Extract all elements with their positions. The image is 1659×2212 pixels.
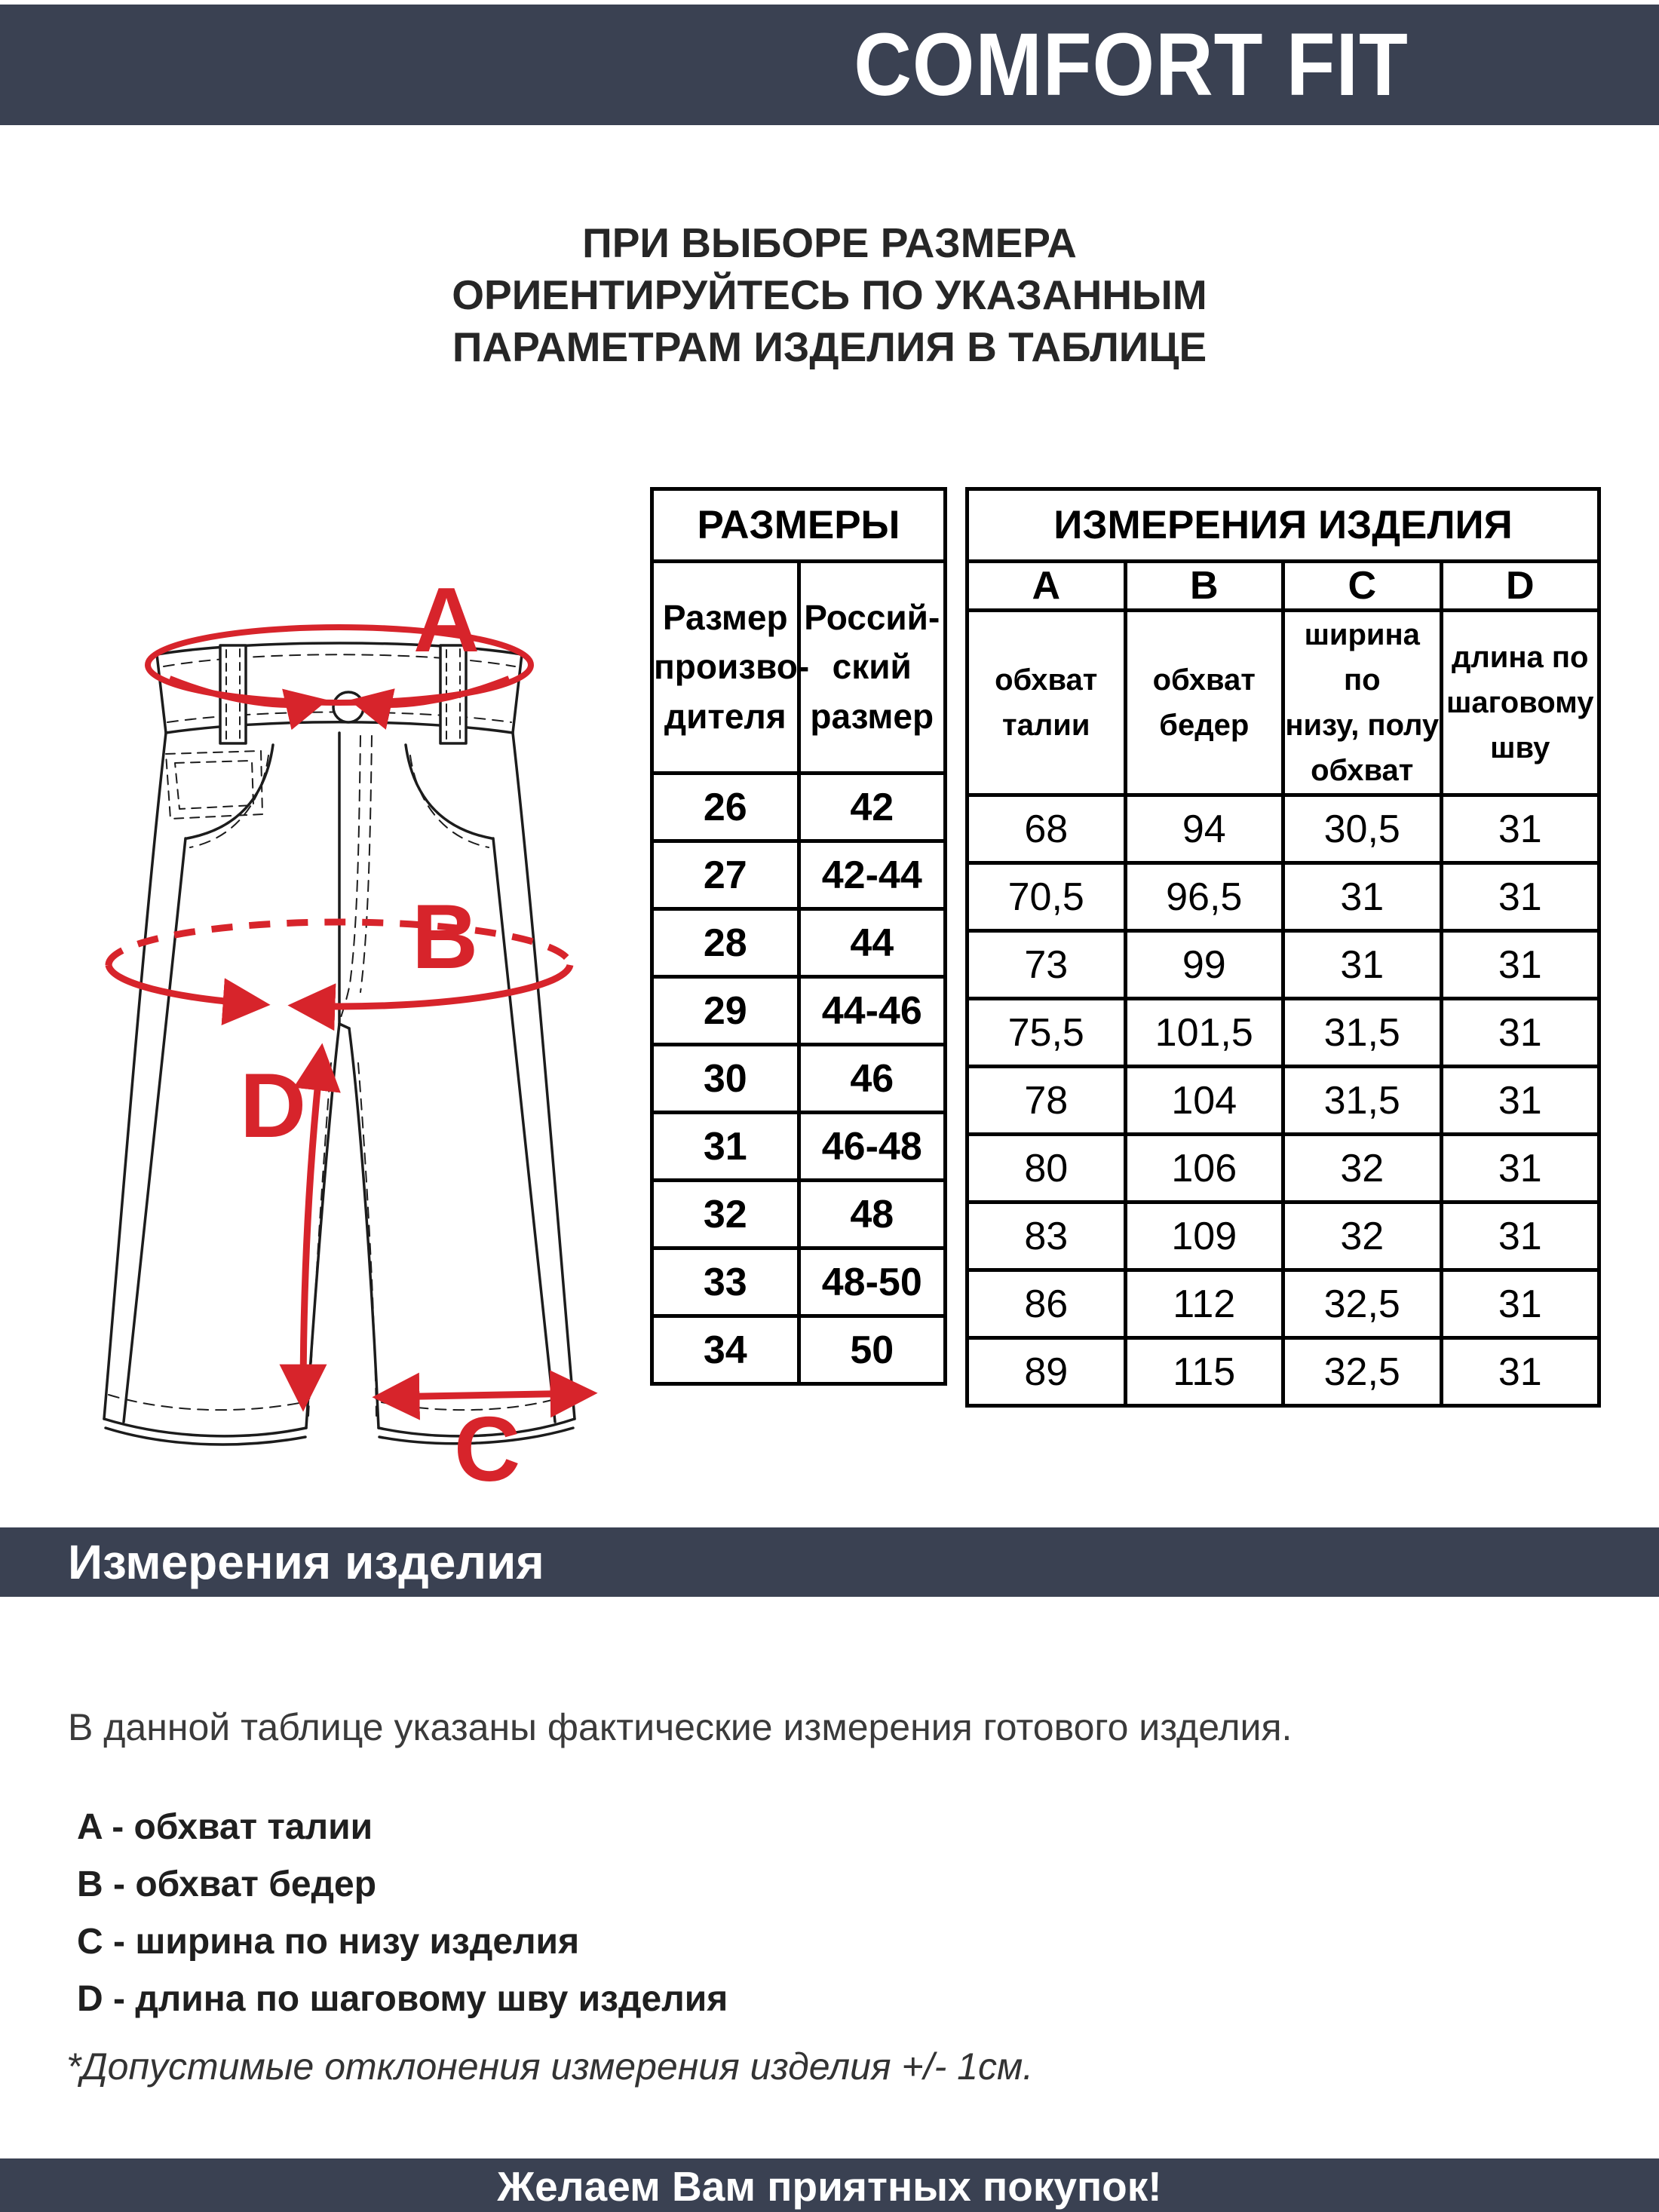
hem-width-cell: 32: [1283, 1203, 1442, 1270]
table-row: 8611232,531: [967, 1270, 1599, 1338]
col-letter-d: D: [1441, 562, 1599, 611]
hip-cell: 96,5: [1125, 863, 1283, 931]
table-row: 73993131: [967, 931, 1599, 999]
maker-size-cell: 28: [652, 909, 799, 977]
section-header-bar: Измерения изделия: [0, 1527, 1659, 1597]
maker-size-cell: 27: [652, 841, 799, 909]
waist-cell: 86: [967, 1270, 1126, 1338]
maker-size-cell: 26: [652, 774, 799, 841]
waist-cell: 80: [967, 1135, 1126, 1203]
table-row: 3348-50: [652, 1248, 946, 1316]
col-letter-a: A: [967, 562, 1126, 611]
legend-item-b: B - обхват бедер: [77, 1856, 728, 1913]
inseam-cell: 31: [1441, 999, 1599, 1067]
shorts-outline: [104, 643, 575, 1445]
waist-cell: 83: [967, 1203, 1126, 1270]
table-row: 3450: [652, 1316, 946, 1384]
maker-size-cell: 32: [652, 1181, 799, 1248]
top-header-bar: COMFORT FIT: [0, 5, 1659, 125]
inseam-cell: 31: [1441, 1338, 1599, 1406]
hip-cell: 112: [1125, 1270, 1283, 1338]
inseam-cell: 31: [1441, 1135, 1599, 1203]
table-row: 3046: [652, 1045, 946, 1113]
legend-item-a: A - обхват талии: [77, 1799, 728, 1856]
hem-width-cell: 31,5: [1283, 999, 1442, 1067]
table-row: 2742-44: [652, 841, 946, 909]
table-row: 2944-46: [652, 977, 946, 1045]
hip-cell: 106: [1125, 1135, 1283, 1203]
inseam-cell: 31: [1441, 931, 1599, 999]
table-row: 7810431,531: [967, 1067, 1599, 1135]
maker-size-cell: 30: [652, 1045, 799, 1113]
waist-cell: 75,5: [967, 999, 1126, 1067]
hem-width-cell: 31: [1283, 931, 1442, 999]
ru-size-cell: 50: [799, 1316, 946, 1384]
table-row: 801063231: [967, 1135, 1599, 1203]
table-row: 2642: [652, 774, 946, 841]
inseam-cell: 31: [1441, 1270, 1599, 1338]
maker-size-header: Размер произво- дителя: [652, 562, 799, 774]
inseam-cell: 31: [1441, 1203, 1599, 1270]
table-row: 831093231: [967, 1203, 1599, 1270]
table-row: 689430,531: [967, 795, 1599, 863]
col-desc-c: ширина по низу, полу обхват: [1283, 611, 1442, 795]
waist-cell: 70,5: [967, 863, 1126, 931]
hip-cell: 109: [1125, 1203, 1283, 1270]
table-row: 75,5101,531,531: [967, 999, 1599, 1067]
ru-size-header: Россий- ский размер: [799, 562, 946, 774]
hip-cell: 99: [1125, 931, 1283, 999]
diagram-label-a: A: [413, 573, 480, 671]
ru-size-cell: 42-44: [799, 841, 946, 909]
maker-size-cell: 29: [652, 977, 799, 1045]
inseam-cell: 31: [1441, 863, 1599, 931]
ru-size-cell: 46-48: [799, 1113, 946, 1181]
table-row: 8911532,531: [967, 1338, 1599, 1406]
ru-size-cell: 42: [799, 774, 946, 841]
hip-cell: 115: [1125, 1338, 1283, 1406]
table-row: 2844: [652, 909, 946, 977]
legend-item-c: C - ширина по низу изделия: [77, 1913, 728, 1971]
tolerance-disclaimer: *Допустимые отклонения измерения изделия…: [66, 2045, 1033, 2088]
hip-cell: 104: [1125, 1067, 1283, 1135]
note-intro: В данной таблице указаны фактические изм…: [68, 1705, 1546, 1749]
shorts-technical-drawing: A B D C: [38, 573, 649, 1493]
footer-bar: Желаем Вам приятных покупок!: [0, 2158, 1659, 2212]
hem-width-cell: 31,5: [1283, 1067, 1442, 1135]
brand-title: COMFORT FIT: [710, 5, 1552, 125]
sizes-table: РАЗМЕРЫ Размер произво- дителя Россий- с…: [650, 487, 947, 1386]
ru-size-cell: 48: [799, 1181, 946, 1248]
diagram-label-c: C: [454, 1398, 520, 1493]
hem-width-cell: 32,5: [1283, 1270, 1442, 1338]
waist-cell: 68: [967, 795, 1126, 863]
col-letter-b: B: [1125, 562, 1283, 611]
hem-width-cell: 32: [1283, 1135, 1442, 1203]
waist-cell: 89: [967, 1338, 1126, 1406]
maker-size-cell: 31: [652, 1113, 799, 1181]
intro-text: ПРИ ВЫБОРЕ РАЗМЕРА ОРИЕНТИРУЙТЕСЬ ПО УКА…: [0, 217, 1659, 372]
size-chart-page: COMFORT FIT ПРИ ВЫБОРЕ РАЗМЕРА ОРИЕНТИРУ…: [0, 0, 1659, 2212]
table-row: 3248: [652, 1181, 946, 1248]
diagram-label-d: D: [240, 1054, 306, 1157]
hip-cell: 94: [1125, 795, 1283, 863]
footer-message: Желаем Вам приятных покупок!: [0, 2158, 1659, 2212]
col-desc-d: длина по шаговому шву: [1441, 611, 1599, 795]
hem-width-cell: 30,5: [1283, 795, 1442, 863]
col-desc-a: обхват талии: [967, 611, 1126, 795]
measurements-table: ИЗМЕРЕНИЯ ИЗДЕЛИЯ A B C D обхват талии о…: [965, 487, 1601, 1408]
ru-size-cell: 46: [799, 1045, 946, 1113]
col-letter-c: C: [1283, 562, 1442, 611]
maker-size-cell: 33: [652, 1248, 799, 1316]
inseam-cell: 31: [1441, 795, 1599, 863]
legend-item-d: D - длина по шаговому шву изделия: [77, 1971, 728, 2028]
hip-cell: 101,5: [1125, 999, 1283, 1067]
measurement-annotations: [109, 627, 588, 1402]
waist-cell: 78: [967, 1067, 1126, 1135]
diagram-label-b: B: [412, 885, 478, 988]
col-desc-b: обхват бедер: [1125, 611, 1283, 795]
ru-size-cell: 48-50: [799, 1248, 946, 1316]
section-title: Измерения изделия: [68, 1527, 544, 1597]
sizes-table-title: РАЗМЕРЫ: [652, 489, 946, 562]
measurement-legend: A - обхват талии B - обхват бедер C - ши…: [77, 1799, 728, 2028]
ru-size-cell: 44-46: [799, 977, 946, 1045]
measurements-table-title: ИЗМЕРЕНИЯ ИЗДЕЛИЯ: [967, 489, 1599, 562]
maker-size-cell: 34: [652, 1316, 799, 1384]
hem-width-cell: 31: [1283, 863, 1442, 931]
inseam-cell: 31: [1441, 1067, 1599, 1135]
ru-size-cell: 44: [799, 909, 946, 977]
waist-cell: 73: [967, 931, 1126, 999]
table-row: 70,596,53131: [967, 863, 1599, 931]
table-row: 3146-48: [652, 1113, 946, 1181]
hem-width-cell: 32,5: [1283, 1338, 1442, 1406]
